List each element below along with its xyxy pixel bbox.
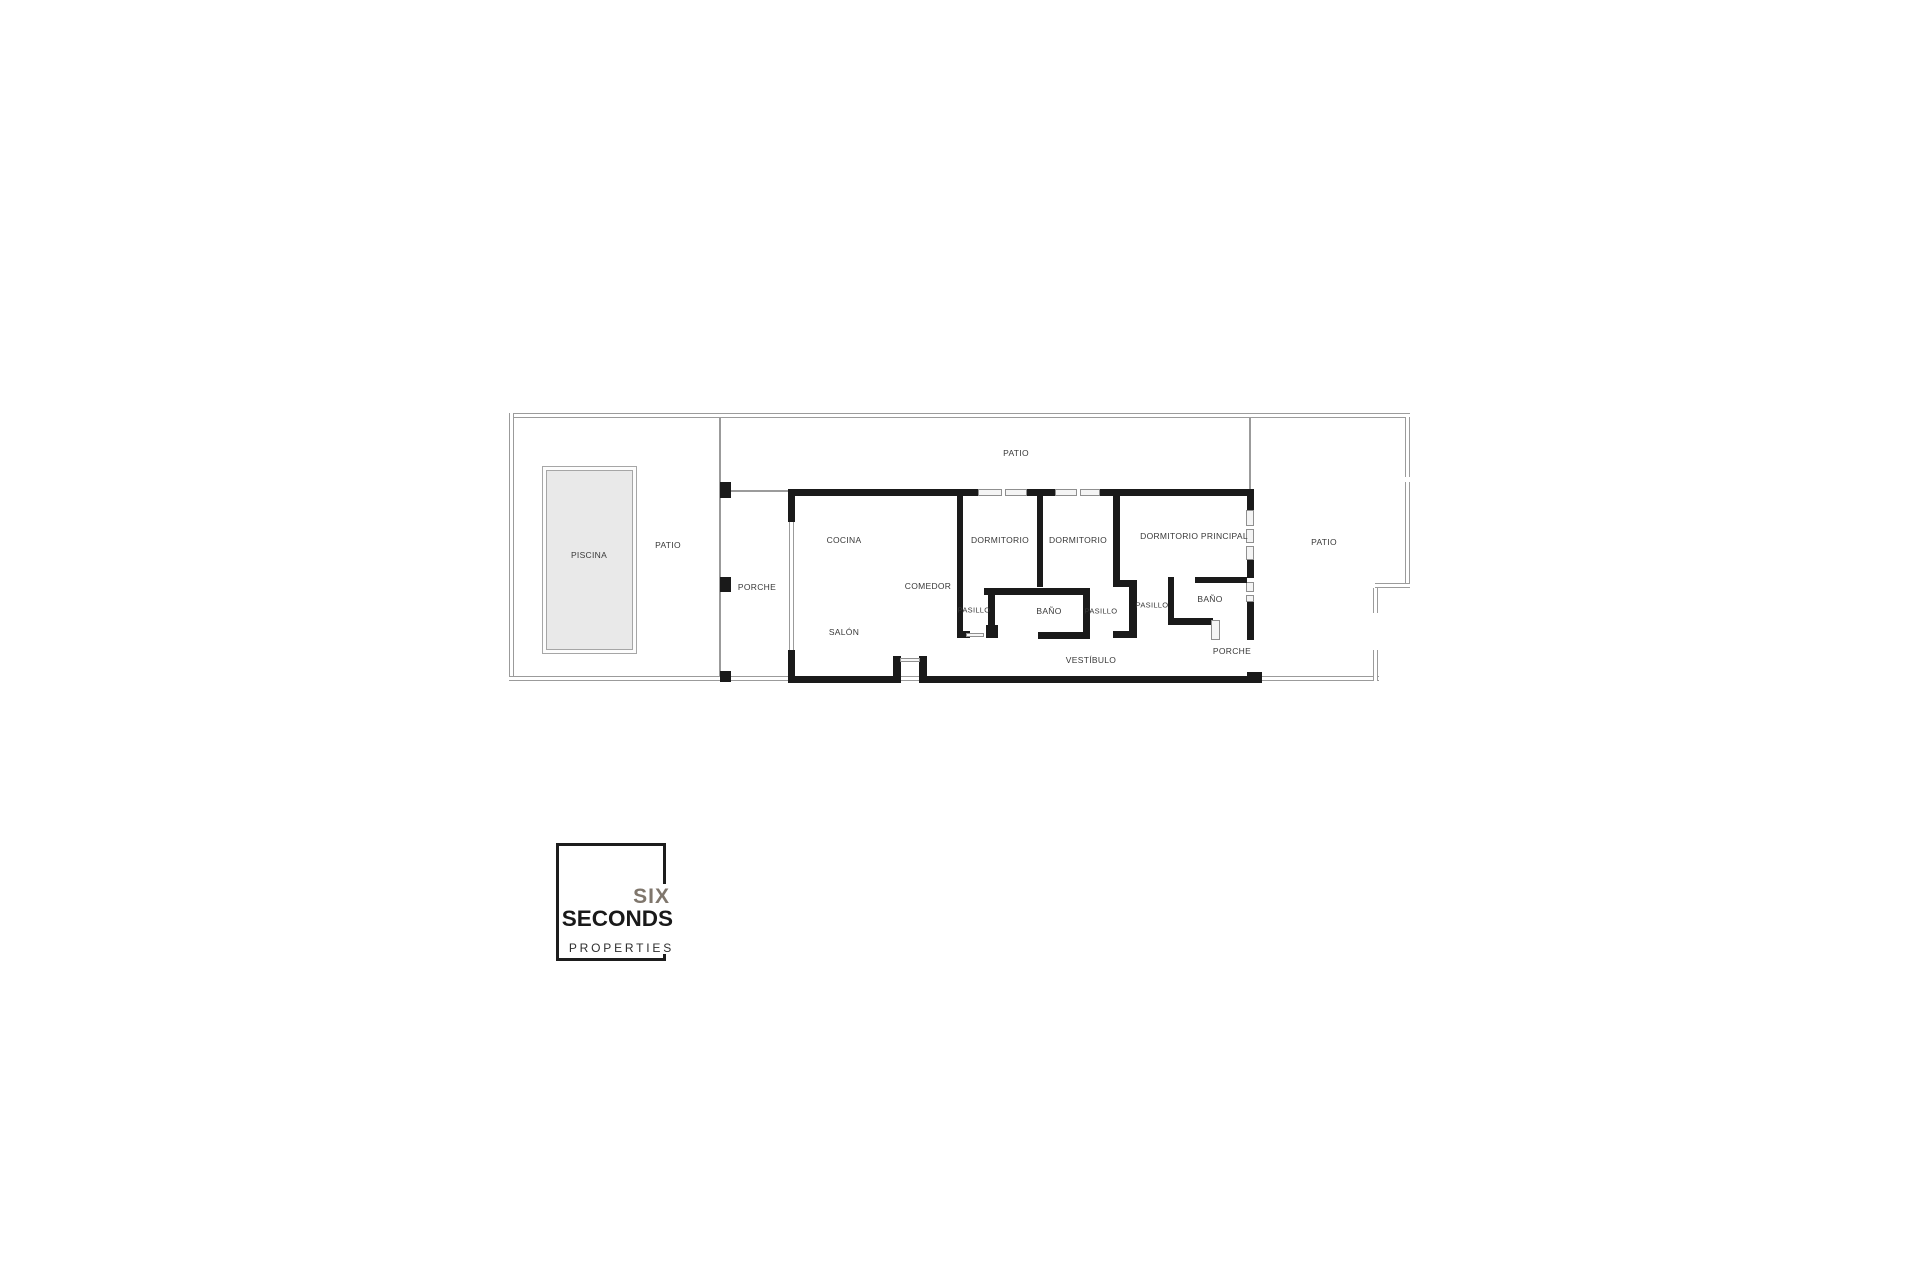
window-mullion <box>1246 591 1254 596</box>
house-wall-top <box>788 489 978 496</box>
room-label-patio-top: PATIO <box>1003 448 1029 458</box>
interior-wall <box>1113 496 1120 587</box>
porch-pillar <box>720 482 731 498</box>
room-label-vestibulo: VESTÍBULO <box>1066 655 1116 665</box>
room-label-salon: SALÓN <box>829 627 859 637</box>
room-label-dormitorio-2: DORMITORIO <box>1049 535 1107 545</box>
plot-boundary-right-upper <box>1405 417 1410 477</box>
interior-wall <box>957 496 963 638</box>
window-symbol <box>1055 489 1100 496</box>
room-label-comedor: COMEDOR <box>905 581 952 591</box>
house-wall-right <box>1247 602 1254 640</box>
house-wall-left <box>788 489 795 522</box>
room-label-pasillo-3: PASILLO <box>1136 601 1169 610</box>
plot-boundary-notch <box>1375 583 1410 588</box>
house-wall-bottom <box>788 676 893 683</box>
porch-door-symbol <box>1211 620 1220 640</box>
plot-boundary-top <box>509 413 1410 418</box>
porch-top-line <box>721 490 788 492</box>
plot-boundary-right-mid <box>1405 482 1410 583</box>
hall-door-symbol <box>966 633 984 637</box>
room-label-pasillo-1: PASILLO <box>958 606 991 615</box>
window-mullion <box>1246 542 1254 547</box>
bathroom-wall <box>986 625 998 638</box>
plot-boundary-left <box>509 413 514 681</box>
room-label-dormitorio-principal: DORMITORIO PRINCIPAL <box>1140 531 1248 541</box>
room-label-pasillo-2: PASILLO <box>1085 607 1118 616</box>
room-label-dormitorio-1: DORMITORIO <box>971 535 1029 545</box>
house-wall-top <box>1027 489 1055 496</box>
plot-boundary-right-lower-2 <box>1373 650 1378 681</box>
window-mullion <box>1076 489 1081 496</box>
bathroom-wall <box>1038 632 1090 639</box>
patio-divider-line <box>1249 418 1251 489</box>
entry-door-symbol <box>900 658 920 662</box>
logo-word-seconds: SECONDS <box>556 906 673 932</box>
pool-water <box>546 470 633 650</box>
room-label-piscina: PISCINA <box>571 550 607 560</box>
entry-door-jamb <box>919 656 927 683</box>
room-label-patio-left: PATIO <box>655 540 681 550</box>
living-room-glass-wall <box>789 522 794 650</box>
room-label-porche-left: PORCHE <box>738 582 776 592</box>
house-wall-bottom <box>927 676 1262 683</box>
hallway-wall <box>1113 631 1137 638</box>
plot-boundary-right-lower-1 <box>1373 588 1378 613</box>
room-label-patio-right: PATIO <box>1311 537 1337 547</box>
window-mullion <box>1246 525 1254 530</box>
bathroom-wall <box>1168 618 1213 625</box>
logo-word-properties: PROPERTIES <box>556 941 674 955</box>
bathroom-wall <box>1195 577 1247 583</box>
house-wall-top <box>1100 489 1254 496</box>
room-label-banyo-2: BAÑO <box>1197 594 1222 604</box>
house-wall-right <box>1247 560 1254 578</box>
porch-pillar <box>720 577 731 592</box>
floor-plan-page: PATIO PATIO PATIO PISCINA PORCHE PORCHE … <box>0 0 1920 1280</box>
interior-wall <box>1037 496 1043 587</box>
room-label-cocina: COCINA <box>827 535 862 545</box>
room-label-porche-right: PORCHE <box>1213 646 1251 656</box>
bathroom-wall <box>984 588 1090 595</box>
porch-pillar <box>720 671 731 682</box>
house-wall-corner <box>1247 672 1262 683</box>
window-mullion <box>1001 489 1006 496</box>
house-wall-right <box>1247 489 1254 510</box>
window-symbol <box>978 489 1027 496</box>
porch-divider-line <box>719 418 721 676</box>
window-symbol <box>1246 582 1254 602</box>
room-label-banyo-1: BAÑO <box>1036 606 1061 616</box>
